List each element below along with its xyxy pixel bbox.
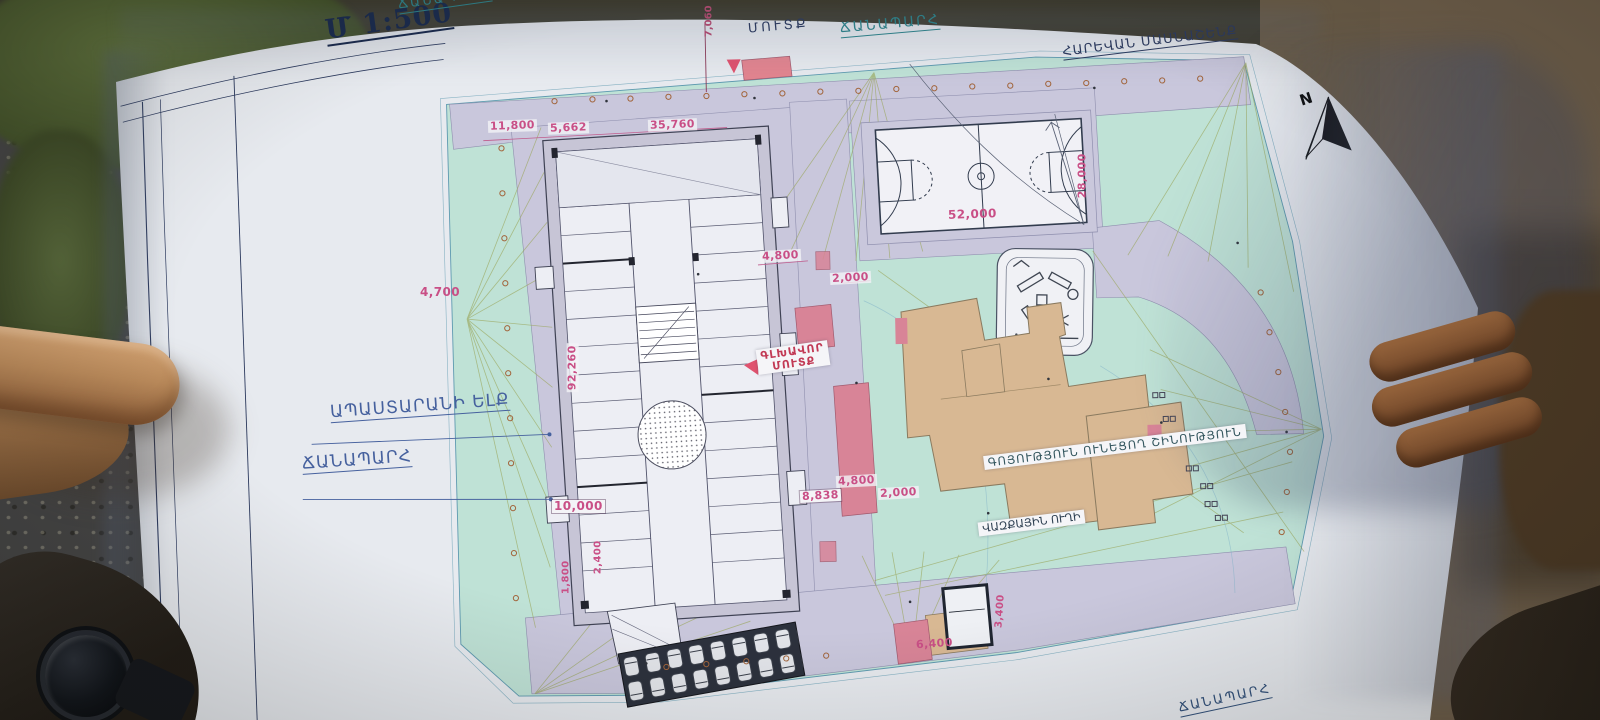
dim-path-top-b: 2,000 [830, 271, 871, 285]
wristwatch [40, 630, 132, 720]
photo-of-architectural-site-plan: Մ 1:500 ՃԱՆԱՊԱՐՀ 7,060 ՄՈՒՏՔ ՃԱՆԱՊԱՐՀ ՀԱ… [0, 0, 1600, 720]
dim-bld-top-left: 11,800 [488, 119, 537, 132]
dim-walk-b: 2,400 [594, 538, 605, 576]
dim-bld-top-mid: 5,662 [548, 121, 589, 134]
dim-court-width: 28,000 [1077, 151, 1089, 200]
dim-site-left: 4,700 [418, 286, 462, 299]
dim-ramp-width: 8,838 [800, 489, 841, 503]
dim-path-top-a: 4,800 [760, 249, 801, 263]
dim-court-length: 52,000 [946, 207, 999, 221]
dim-path-mid-a: 4,800 [836, 474, 877, 488]
dim-shed-width: 6,400 [914, 637, 956, 651]
dim-bld-gap-bottom: 10,000 [552, 500, 605, 513]
dim-bld-top-width: 35,760 [648, 118, 697, 131]
stairwell [636, 303, 699, 363]
dim-entry-offset: 7,060 [705, 5, 716, 37]
dim-path-mid-b: 2,000 [878, 486, 919, 500]
dim-walk-a: 1,800 [562, 558, 573, 596]
dim-bld-length: 92,260 [567, 343, 579, 392]
